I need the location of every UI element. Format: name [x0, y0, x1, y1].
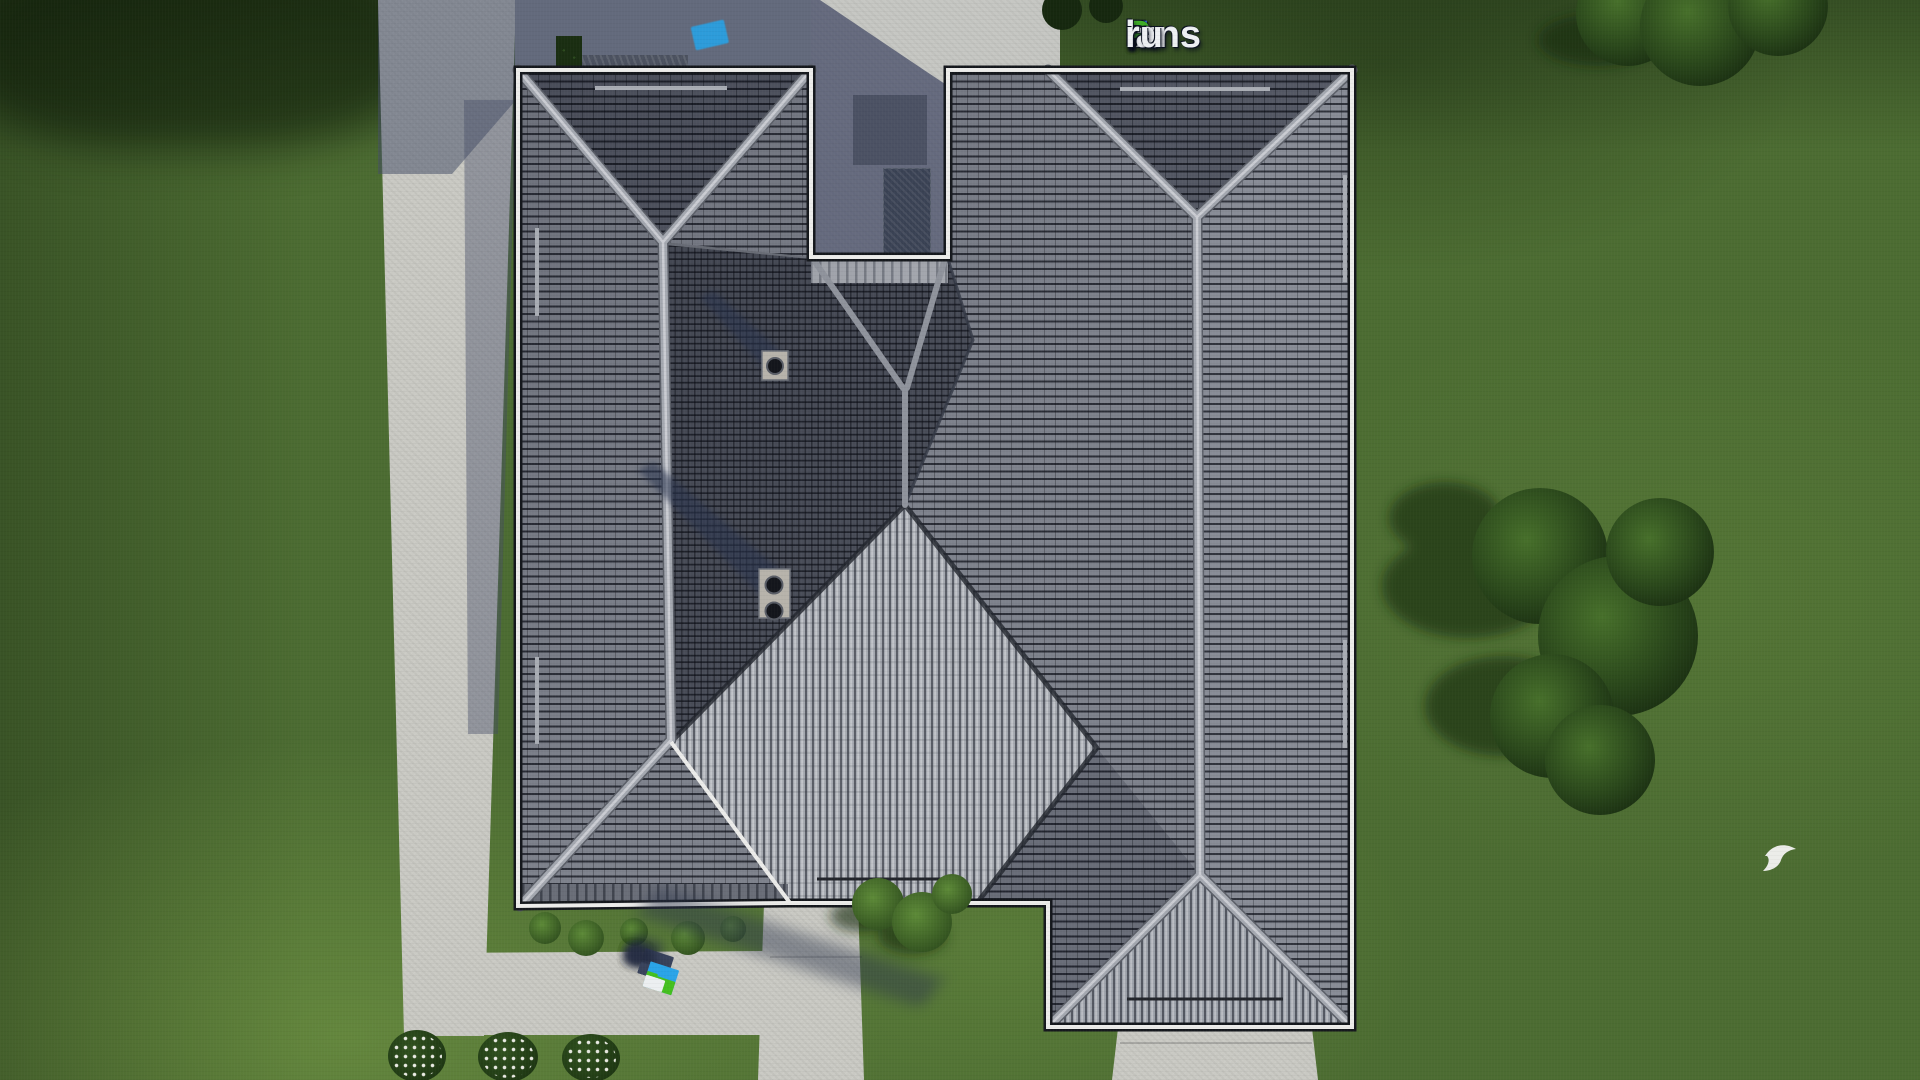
tree-cluster-top-right	[1576, 0, 1828, 86]
watermark-block-10	[691, 19, 730, 50]
roof-vent-double	[759, 569, 790, 620]
roof	[518, 70, 1352, 1027]
watermark-logo-text: FixPlans.ru	[1125, 14, 1425, 60]
logo-segment-5: ru	[1125, 14, 1163, 57]
roof-render	[0, 0, 1920, 1080]
white-bird	[1762, 840, 1802, 876]
roof-vent-single	[762, 351, 788, 380]
north-bushes	[1042, 0, 1123, 30]
flower-bush-1	[388, 1030, 446, 1080]
aerial-render-stage: FixPlans.ru	[0, 0, 1920, 1080]
flower-bush-2	[478, 1032, 538, 1080]
tree-cluster-right	[1472, 488, 1714, 815]
flower-bush-3	[562, 1034, 620, 1080]
